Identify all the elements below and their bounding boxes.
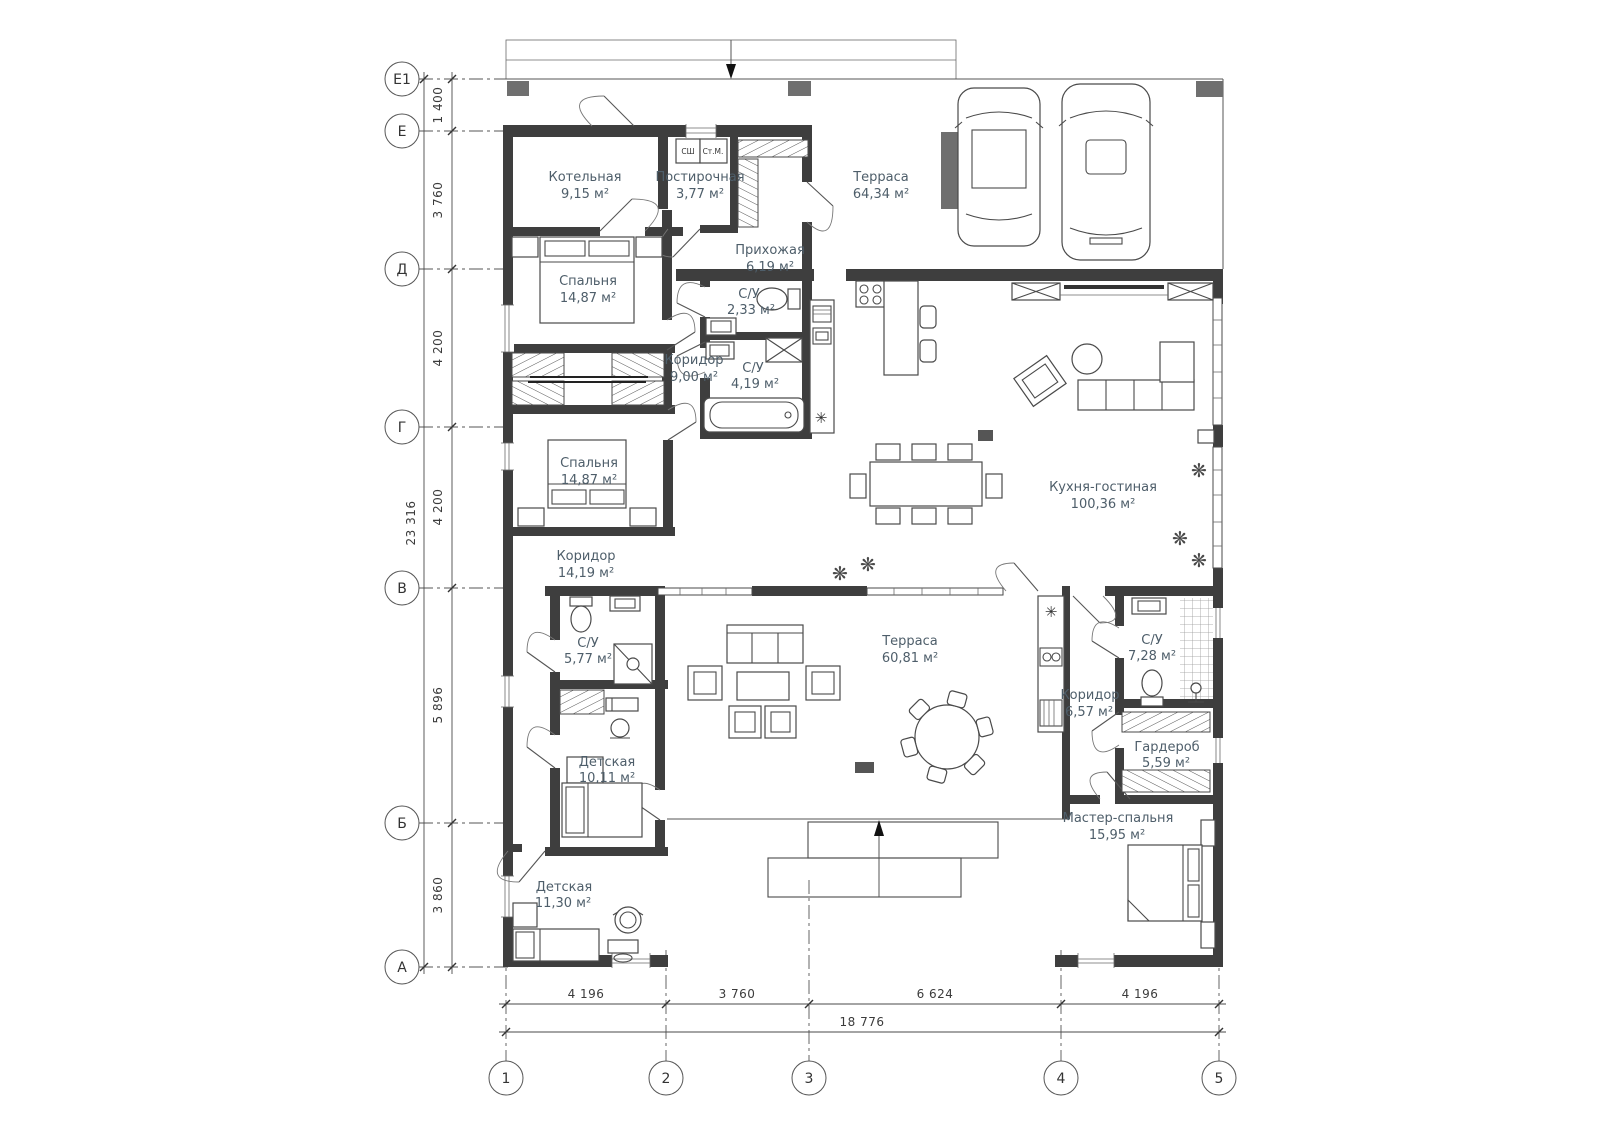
svg-text:Спальня: Спальня	[559, 274, 617, 289]
side-counter-icon	[1198, 430, 1214, 443]
shower-icon	[614, 644, 652, 684]
pillar	[941, 132, 958, 209]
outdoor-kitchen-icon: ✳	[1038, 596, 1064, 732]
room-label-master: Мастер-спальня15,95 м²	[1063, 811, 1174, 843]
bathtub-icon	[704, 398, 804, 432]
wardrobe-icon	[560, 690, 604, 714]
entry-arrow-icon	[726, 64, 736, 79]
axis-label: 4	[1057, 1071, 1066, 1087]
dim-left-5896: 5 896	[431, 687, 445, 724]
svg-text:Котельная: Котельная	[548, 170, 621, 185]
svg-text:3,77 м²: 3,77 м²	[676, 187, 724, 202]
room-label-su577: С/У5,77 м²	[564, 636, 612, 667]
rug-mark	[978, 430, 993, 441]
svg-text:15,95 м²: 15,95 м²	[1089, 828, 1145, 843]
svg-text:Терраса: Терраса	[881, 634, 938, 649]
room-label-su419: С/У4,19 м²	[731, 361, 779, 392]
svg-text:2,33 м²: 2,33 м²	[727, 303, 775, 318]
wardrobe-icon	[738, 140, 808, 157]
tv-icon	[1064, 285, 1164, 289]
svg-text:Мастер-спальня: Мастер-спальня	[1063, 811, 1174, 826]
mat-mark	[855, 762, 874, 773]
dim-left-total: 23 316	[404, 501, 418, 546]
floor-plan-drawing: Е1 Е Д Г В Б А 1 400 3 760 4 200 4 200 5…	[0, 0, 1600, 1131]
column	[788, 81, 811, 96]
svg-text:9,00 м²: 9,00 м²	[670, 370, 718, 385]
washing-machine-icon: Ст.М.	[700, 139, 727, 163]
svg-text:100,36 м²: 100,36 м²	[1071, 497, 1136, 512]
axis-label: 5	[1215, 1071, 1224, 1087]
toilet-icon	[1141, 670, 1163, 706]
column	[1196, 81, 1223, 97]
kitchen-island-icon	[884, 281, 936, 375]
coffee-table-icon	[1072, 344, 1102, 374]
svg-text:Детская: Детская	[536, 880, 593, 895]
svg-text:7,28 м²: 7,28 м²	[1128, 649, 1176, 664]
floor-plan-page: Е1 Е Д Г В Б А 1 400 3 760 4 200 4 200 5…	[0, 0, 1600, 1131]
dim-bottom-total: 18 776	[840, 1015, 885, 1029]
plant-icon: ❋	[1191, 550, 1207, 572]
sink-icon	[706, 318, 736, 335]
dim-bottom-4196b: 4 196	[1122, 987, 1159, 1001]
window	[686, 124, 716, 138]
window	[1078, 953, 1114, 968]
door	[996, 563, 1038, 591]
axis-label: 3	[805, 1071, 814, 1087]
axis-label: 1	[502, 1071, 511, 1087]
axis-label: Е	[398, 124, 407, 140]
axis-row-a: А	[385, 950, 510, 984]
svg-text:4,19 м²: 4,19 м²	[731, 377, 779, 392]
room-label-koridor9: Коридор9,00 м²	[664, 353, 723, 385]
tv-wall	[1012, 283, 1213, 300]
window	[501, 443, 514, 470]
steps-icon	[667, 819, 1070, 897]
svg-text:Детская: Детская	[579, 755, 636, 770]
window	[501, 676, 514, 707]
axis-label: Д	[397, 262, 408, 278]
wardrobe-icon	[512, 353, 664, 405]
cooktop-icon	[856, 281, 886, 307]
axis-row-e1: Е1	[385, 62, 505, 96]
plant-icon: ❋	[1172, 528, 1188, 550]
dining-table-icon	[850, 444, 1002, 524]
dim-bottom-3760: 3 760	[719, 987, 756, 1001]
dryer-cabinet-icon: СШ	[676, 139, 700, 163]
car-icon	[1059, 84, 1153, 260]
dim-left-4200a: 4 200	[431, 330, 445, 367]
room-label-su728: С/У7,28 м²	[1128, 633, 1176, 664]
svg-text:С/У: С/У	[738, 287, 759, 302]
axis-label: Е1	[393, 72, 411, 88]
outdoor-sofa-icon	[688, 625, 840, 738]
svg-text:СШ: СШ	[681, 147, 694, 156]
svg-text:14,87 м²: 14,87 м²	[560, 291, 616, 306]
svg-text:Постирочная: Постирочная	[655, 170, 744, 185]
svg-text:Кухня-гостиная: Кухня-гостиная	[1049, 480, 1157, 495]
dim-left-3760: 3 760	[431, 182, 445, 219]
svg-text:6,19 м²: 6,19 м²	[746, 260, 794, 275]
window	[501, 305, 514, 352]
car-icon	[955, 88, 1043, 246]
svg-text:С/У: С/У	[1141, 633, 1162, 648]
svg-text:10,11 м²: 10,11 м²	[579, 771, 635, 786]
svg-text:Коридор: Коридор	[556, 549, 615, 564]
axis-label: А	[397, 960, 407, 976]
window	[501, 876, 514, 917]
dim-left-4200b: 4 200	[431, 489, 445, 526]
svg-text:14,19 м²: 14,19 м²	[558, 566, 614, 581]
svg-text:Прихожая: Прихожая	[735, 243, 805, 258]
washer-box-icon	[766, 338, 802, 362]
plant-icon: ❋	[832, 563, 848, 585]
svg-text:Гардероб: Гардероб	[1134, 740, 1199, 755]
axis-label: 2	[662, 1071, 671, 1087]
pot-icon	[613, 907, 643, 933]
axis-row-d: Д	[385, 252, 510, 286]
desk-icon	[606, 698, 638, 711]
armchair-icon	[1014, 356, 1066, 407]
svg-text:11,30 м²: 11,30 м²	[535, 896, 591, 911]
svg-text:Коридор: Коридор	[1060, 688, 1119, 703]
door	[1073, 596, 1116, 623]
bed-icon	[513, 929, 599, 961]
window	[1212, 608, 1224, 638]
bottom-dimension-chain: 4 196 3 760 6 624 4 196 18 776	[499, 987, 1226, 1036]
room-label-kuhnya-gostinaya: Кухня-гостиная100,36 м²	[1049, 480, 1157, 512]
axis-label: В	[397, 581, 407, 597]
svg-text:Терраса: Терраса	[852, 170, 909, 185]
axis-row-v: В	[385, 571, 510, 605]
svg-text:Ст.М.: Ст.М.	[703, 147, 724, 156]
room-label-kotelnaya: Котельная9,15 м²	[548, 170, 621, 202]
room-label-terrasa-top: Терраса64,34 м²	[852, 170, 909, 202]
room-label-detskaya11: Детская11,30 м²	[535, 880, 592, 911]
column	[507, 81, 529, 96]
window	[1212, 738, 1224, 763]
room-label-garderob: Гардероб5,59 м²	[1134, 740, 1199, 771]
axis-row-e: Е	[385, 114, 505, 148]
door	[600, 199, 658, 231]
chair-icon	[610, 719, 630, 738]
bed-icon	[562, 783, 642, 837]
fridge-icon: ✳	[1045, 603, 1058, 621]
svg-text:60,81 м²: 60,81 м²	[882, 651, 938, 666]
dim-left-3860: 3 860	[431, 877, 445, 914]
toilet-icon	[570, 597, 592, 632]
axis-row-g: Г	[385, 410, 510, 444]
room-label-detskaya10: Детская10,11 м²	[579, 755, 636, 786]
fridge-icon: ✳	[815, 409, 828, 427]
axis-row-b: Б	[385, 806, 510, 840]
door	[580, 96, 635, 126]
left-dimension-chain: 1 400 3 760 4 200 4 200 5 896 3 860 23 3…	[404, 72, 456, 974]
svg-text:Коридор: Коридор	[664, 353, 723, 368]
svg-text:5,77 м²: 5,77 м²	[564, 652, 612, 667]
round-table-icon	[900, 690, 994, 784]
door	[1092, 622, 1119, 658]
plant-icon: ❋	[1191, 460, 1207, 482]
axis-label: Б	[397, 816, 407, 832]
cabinet-icon	[513, 903, 537, 927]
svg-text:С/У: С/У	[742, 361, 763, 376]
dim-bottom-4196a: 4 196	[568, 987, 605, 1001]
axis-label: Г	[398, 420, 407, 436]
door	[677, 283, 705, 317]
svg-text:6,57 м²: 6,57 м²	[1065, 705, 1113, 720]
sink-icon	[610, 596, 640, 611]
room-label-terrasa-bottom: Терраса60,81 м²	[881, 634, 938, 666]
svg-text:9,15 м²: 9,15 м²	[561, 187, 609, 202]
svg-text:64,34 м²: 64,34 м²	[853, 187, 909, 202]
room-label-koridor14: Коридор14,19 м²	[556, 549, 615, 581]
svg-text:14,87 м²: 14,87 м²	[561, 473, 617, 488]
svg-text:5,59 м²: 5,59 м²	[1142, 756, 1190, 771]
sink-icon	[1132, 598, 1166, 614]
plant-icon: ❋	[860, 554, 876, 576]
canopy-roof	[506, 40, 956, 79]
svg-text:С/У: С/У	[577, 636, 598, 651]
svg-text:Спальня: Спальня	[560, 456, 618, 471]
dim-left-1400: 1 400	[431, 87, 445, 124]
dim-bottom-6624: 6 624	[917, 987, 954, 1001]
